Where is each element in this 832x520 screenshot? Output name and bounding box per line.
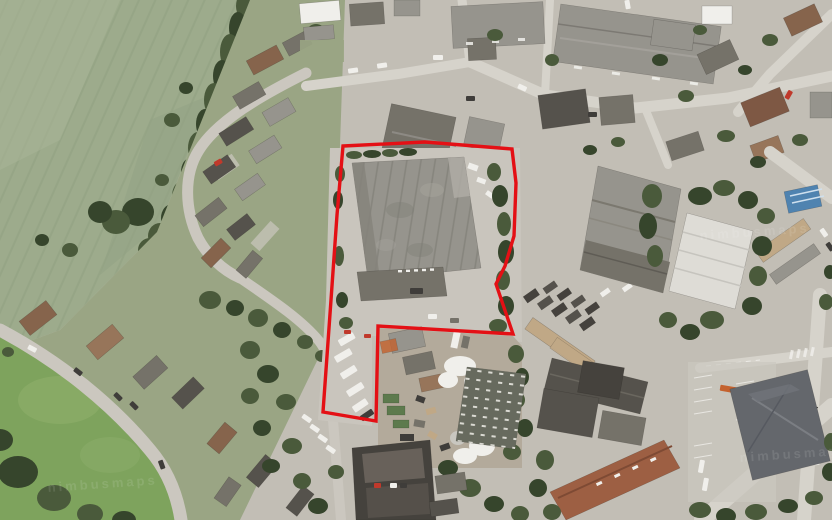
aerial-photo: nimbusmaps nimbusmaps nimbusmaps [0,0,832,520]
annex-building [357,267,447,301]
brown-roof-complex [352,440,436,520]
dark-warehouse [580,166,681,293]
skylight-roof-building [456,367,526,449]
aerial-map: nimbusmaps nimbusmaps nimbusmaps [0,0,832,520]
main-warehouse [352,157,481,280]
